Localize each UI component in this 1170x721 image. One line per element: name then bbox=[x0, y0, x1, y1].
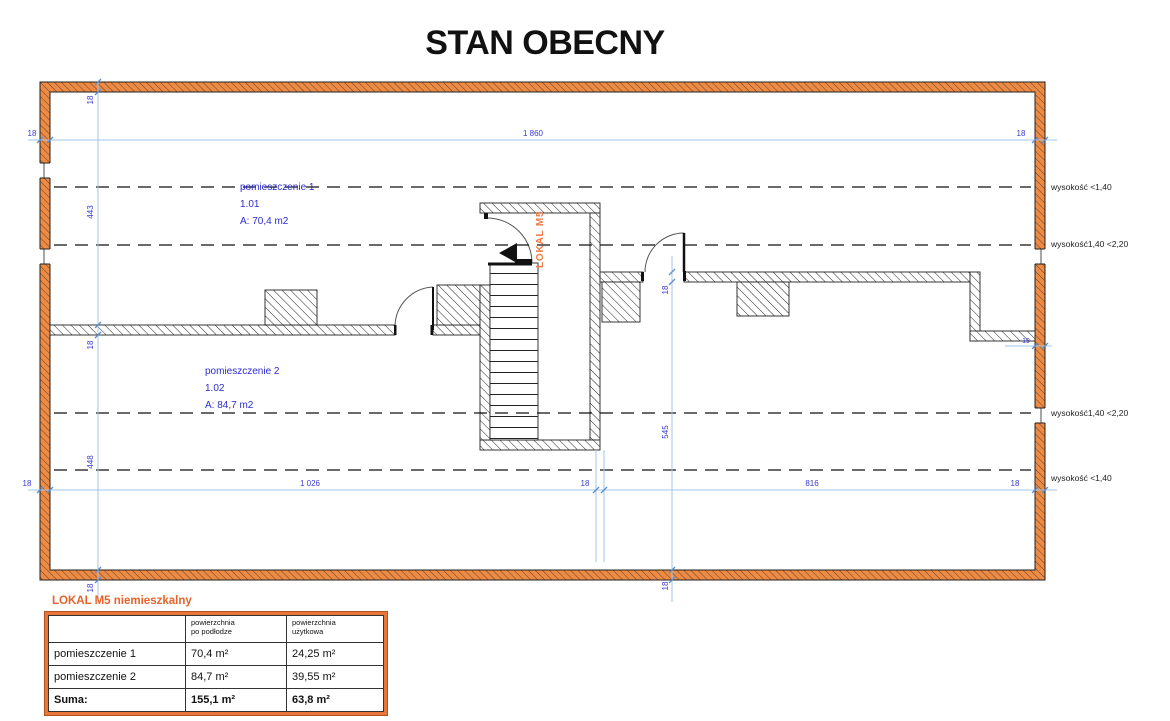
wall-segment bbox=[50, 325, 395, 335]
dim-bottom-mid-wall: 18 bbox=[581, 479, 590, 488]
table-header-row: powierzchnia po podłodze powierzchnia uż… bbox=[49, 616, 384, 643]
dim-bottom-seg1: 1 026 bbox=[300, 479, 321, 488]
dim-mid-v2: 545 bbox=[661, 425, 670, 439]
column-header-floor: powierzchnia po podłodze bbox=[186, 616, 287, 643]
height-label-2: wysokość1,40 <2,20 bbox=[1050, 239, 1129, 249]
cell-floor: 70,4 m² bbox=[186, 643, 287, 666]
floor-plan: 1 860 18 18 1 026 18 816 18 18 18 443 18… bbox=[0, 0, 1170, 721]
dim-left-v2: 443 bbox=[86, 205, 95, 219]
table-row: pomieszczenie 1 70,4 m² 24,25 m² bbox=[49, 643, 384, 666]
room-2-name: pomieszczenie 2 bbox=[205, 366, 280, 377]
dim-bottom-seg2: 816 bbox=[805, 479, 819, 488]
window-opening bbox=[1035, 408, 1046, 423]
wall-segment bbox=[433, 325, 480, 335]
row-label: pomieszczenie 2 bbox=[49, 666, 186, 689]
row-label: pomieszczenie 1 bbox=[49, 643, 186, 666]
dim-top-wall-left: 18 bbox=[28, 129, 37, 138]
dim-left-v4: 448 bbox=[86, 455, 95, 469]
dim-left-v1: 18 bbox=[86, 95, 95, 104]
dim-mid-v3: 18 bbox=[661, 581, 670, 590]
dim-bottom-left-wall: 18 bbox=[23, 479, 32, 488]
dim-bottom-right-wall: 18 bbox=[1011, 479, 1020, 488]
room-2-area: A: 84,7 m2 bbox=[205, 400, 254, 411]
column-header-empty bbox=[49, 616, 186, 643]
window-opening bbox=[40, 249, 51, 264]
wall-segment bbox=[684, 272, 970, 282]
row-label: Suma: bbox=[49, 689, 186, 712]
cell-floor: 84,7 m² bbox=[186, 666, 287, 689]
height-label-1: wysokość <1,40 bbox=[1050, 182, 1112, 192]
window-opening bbox=[1035, 249, 1046, 264]
stair-wall-left bbox=[480, 285, 490, 440]
height-label-4: wysokość <1,40 bbox=[1050, 473, 1112, 483]
dim-top-wall-right: 18 bbox=[1017, 129, 1026, 138]
room-2-number: 1.02 bbox=[205, 383, 225, 394]
table-sum-row: Suma: 155,1 m² 63,8 m² bbox=[49, 689, 384, 712]
area-table: powierzchnia po podłodze powierzchnia uż… bbox=[48, 615, 384, 712]
unit-label: LOKAL M5 bbox=[535, 211, 546, 268]
chimney-block bbox=[437, 285, 480, 325]
cell-usable: 63,8 m² bbox=[287, 689, 384, 712]
height-labels: wysokość <1,40 wysokość1,40 <2,20 wysoko… bbox=[1050, 182, 1129, 483]
dim-mid-v1: 18 bbox=[661, 285, 670, 294]
stair-wall-bottom bbox=[480, 440, 600, 450]
page: STAN OBECNY bbox=[0, 0, 1170, 721]
column-header-usable: powierzchnia użytkowa bbox=[287, 616, 384, 643]
dim-right-step: 19 bbox=[1022, 338, 1030, 345]
stair-direction-arrow-tail bbox=[515, 259, 532, 265]
room-1-area: A: 70,4 m2 bbox=[240, 216, 289, 227]
cell-floor: 155,1 m² bbox=[186, 689, 287, 712]
chimney-block bbox=[265, 290, 317, 325]
room-1-name: pomieszczenie 1 bbox=[240, 182, 315, 193]
legend-title: LOKAL M5 niemieszkalny bbox=[52, 595, 192, 607]
dim-left-v3: 18 bbox=[86, 340, 95, 349]
chimney-block bbox=[602, 282, 640, 322]
cell-usable: 24,25 m² bbox=[287, 643, 384, 666]
window-opening bbox=[40, 163, 51, 178]
room-1-number: 1.01 bbox=[240, 199, 260, 210]
chimney-block bbox=[737, 282, 789, 316]
stair-wall-right bbox=[590, 213, 600, 440]
wall-segment bbox=[600, 272, 643, 282]
height-label-3: wysokość1,40 <2,20 bbox=[1050, 408, 1129, 418]
table-row: pomieszczenie 2 84,7 m² 39,55 m² bbox=[49, 666, 384, 689]
dim-left-v5: 18 bbox=[86, 583, 95, 592]
dim-top-total: 1 860 bbox=[523, 129, 544, 138]
cell-usable: 39,55 m² bbox=[287, 666, 384, 689]
